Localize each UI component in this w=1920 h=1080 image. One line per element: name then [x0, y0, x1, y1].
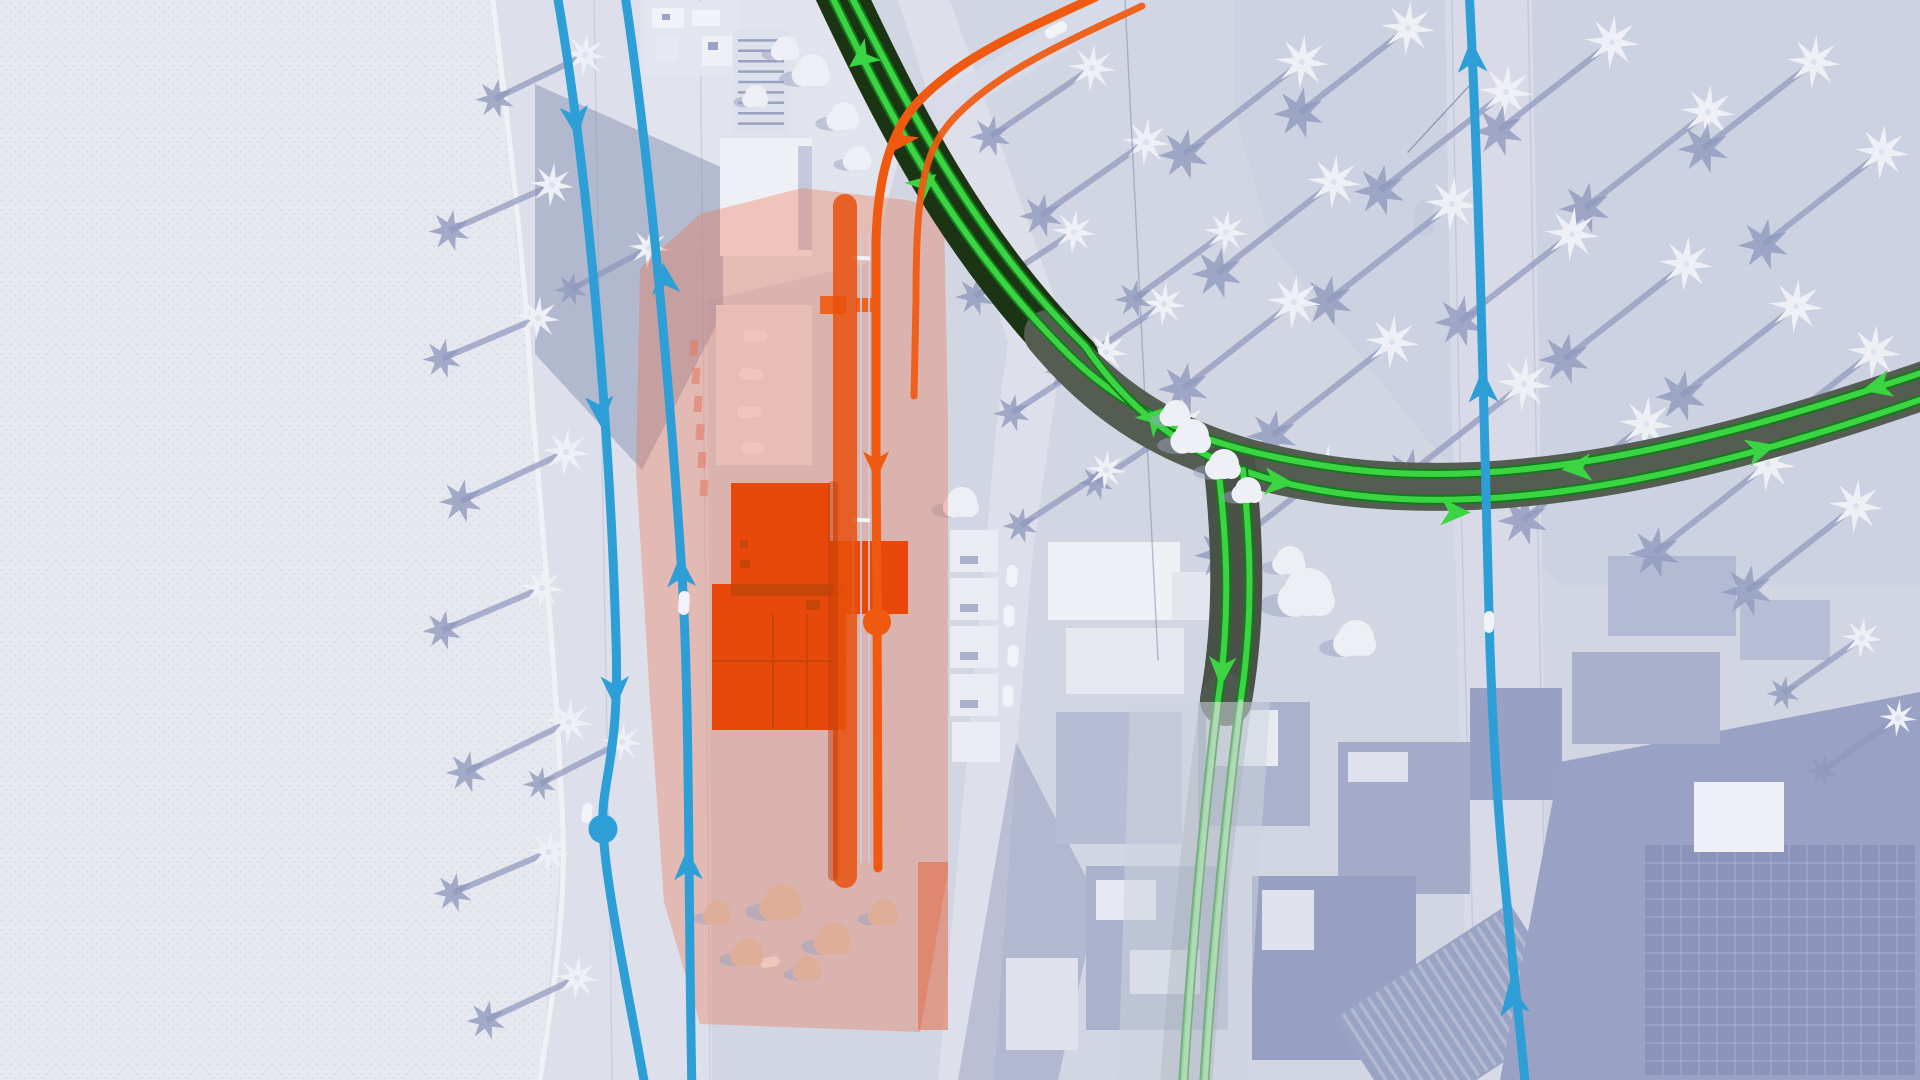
row-house [950, 626, 998, 668]
building [1694, 782, 1784, 852]
palm-canopy-center [549, 182, 555, 188]
palm-canopy-center [1223, 229, 1229, 235]
building [1608, 556, 1736, 636]
zone-edge-stripe [918, 862, 948, 1030]
palm-canopy-center [1765, 461, 1771, 467]
row-house [950, 578, 998, 620]
palm-canopy-center [563, 449, 569, 455]
tree-canopy [1174, 410, 1190, 426]
palm-canopy-center [619, 739, 625, 745]
row-house-mark [960, 652, 978, 660]
palm-canopy-center [1859, 635, 1865, 641]
zone-fence [691, 368, 700, 385]
tree-canopy [882, 909, 898, 925]
palm-canopy-center [539, 585, 545, 591]
palm-canopy-center [1291, 299, 1297, 305]
row-house-mark [960, 556, 978, 564]
tree-canopy [810, 66, 830, 86]
palm-canopy-center [1161, 301, 1167, 307]
palm-canopy-center [566, 719, 572, 725]
building [1066, 628, 1184, 694]
car[interactable] [1003, 685, 1014, 707]
game-viewport[interactable] [0, 0, 1920, 1080]
palm-canopy-center [582, 52, 588, 58]
building [1470, 688, 1562, 800]
palm-canopy-center [1089, 65, 1095, 71]
tree-canopy [717, 909, 732, 924]
building [1006, 958, 1078, 1050]
selected-building-detail [772, 614, 774, 728]
palm-canopy-center [1683, 261, 1689, 267]
zone-fence [693, 396, 702, 413]
zone-fence [695, 424, 704, 441]
palm-canopy-center [1331, 179, 1337, 185]
transit-stop-blue[interactable] [589, 815, 618, 844]
tree-canopy [1354, 634, 1376, 656]
tree-canopy [755, 93, 769, 107]
palm-canopy-center [1569, 231, 1575, 237]
building-roof-detail [708, 42, 718, 50]
car[interactable] [1006, 565, 1018, 587]
palm-canopy-center [1389, 339, 1395, 345]
tree-canopy [842, 113, 859, 130]
palm-canopy-center [1609, 39, 1615, 45]
car[interactable] [1007, 645, 1019, 668]
tree-canopy [785, 45, 800, 60]
car[interactable] [1004, 605, 1015, 627]
palm-canopy-center [1895, 715, 1901, 721]
building [1572, 652, 1720, 744]
palm-canopy-center [1793, 303, 1799, 309]
transit-vehicle[interactable] [678, 591, 690, 616]
palm-canopy-center [1299, 59, 1305, 65]
tree-canopy [1288, 557, 1305, 574]
grid-roof-building [1645, 845, 1915, 1075]
palm-canopy-center [1103, 349, 1109, 355]
building-roof-detail [1348, 752, 1408, 782]
building [1048, 542, 1180, 620]
tree-canopy [1190, 432, 1211, 453]
palm-canopy-center [546, 849, 552, 855]
palm-canopy-center [1405, 25, 1411, 31]
tree-canopy [857, 155, 872, 170]
snow-terrain [0, 0, 563, 1080]
palm-canopy-center [1871, 349, 1877, 355]
selected-building-detail [806, 600, 820, 610]
tree-canopy [780, 898, 802, 920]
selected-building-detail [806, 614, 808, 728]
snow-stipple [0, 0, 563, 1080]
zone-fence [699, 480, 708, 497]
tree-canopy [1305, 586, 1335, 616]
tree-canopy [807, 965, 822, 980]
tree-canopy [1246, 487, 1262, 503]
occlusion-fade [1118, 702, 1270, 1080]
palm-canopy-center [1811, 59, 1817, 65]
palm-canopy-center [574, 975, 580, 981]
palm-canopy-center [1643, 421, 1649, 427]
transit-stop-orange[interactable] [863, 608, 891, 636]
palm-canopy-center [1103, 467, 1109, 473]
row-house [952, 722, 1000, 762]
palm-canopy-center [1449, 201, 1455, 207]
zone-fence [697, 452, 706, 469]
palm-canopy-center [1705, 109, 1711, 115]
building-roof-detail [702, 36, 732, 66]
building-roof-detail [656, 36, 678, 62]
selected-building-detail [740, 540, 748, 548]
transit-vehicle[interactable] [1484, 611, 1495, 633]
row-house [950, 530, 998, 572]
tree-canopy [1222, 460, 1241, 479]
tree-canopy [960, 498, 979, 517]
palm-canopy-center [1853, 503, 1859, 509]
tree-canopy [746, 949, 763, 966]
palm-canopy-center [1071, 229, 1077, 235]
row-house-mark [960, 604, 978, 612]
palm-canopy-center [1879, 149, 1885, 155]
building-roof-detail [662, 14, 670, 20]
row-house [950, 674, 998, 716]
palm-canopy-center [535, 315, 541, 321]
palm-canopy-center [1143, 139, 1149, 145]
selected-building-detail [713, 660, 845, 662]
transit-overlay-map [0, 0, 1920, 1080]
selected-building-detail [740, 560, 750, 568]
tree-canopy [832, 934, 852, 954]
zone-fence [689, 340, 698, 357]
building-roof-detail [1262, 890, 1314, 950]
palm-canopy-center [1521, 381, 1527, 387]
row-house-mark [960, 700, 978, 708]
building-roof-detail [692, 10, 720, 26]
palm-canopy-center [1503, 89, 1509, 95]
